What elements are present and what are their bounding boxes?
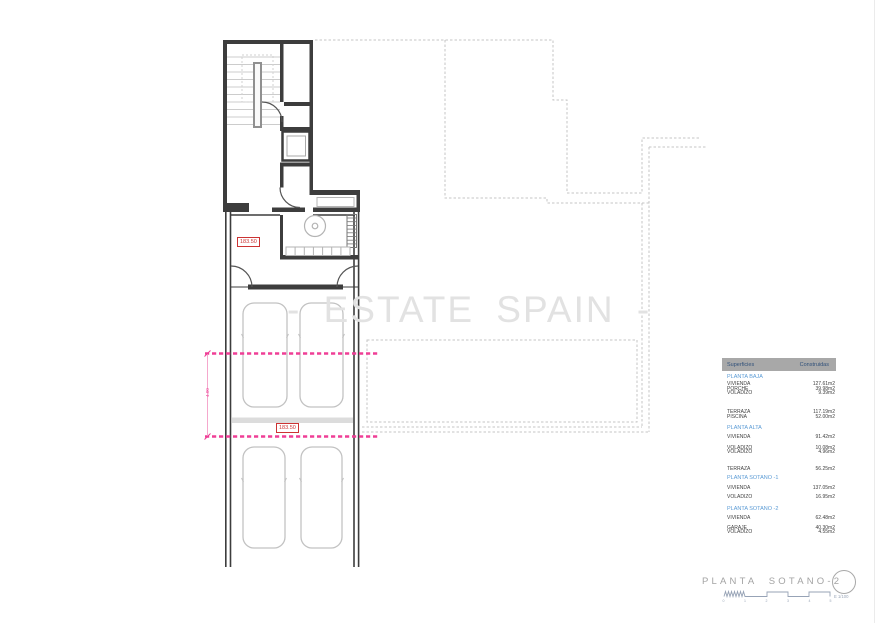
- surface-value: 9.39m2: [818, 391, 835, 396]
- elevator-shaft: [283, 132, 310, 161]
- surface-label: VIVIENDA: [727, 435, 750, 440]
- surface-value: 52.00m2: [816, 415, 835, 420]
- car-outline: [301, 447, 342, 548]
- surfaces-header-right: Construidas: [800, 362, 829, 368]
- table-section-row: PLANTA SOTANO -1: [727, 476, 835, 481]
- level-elevation-label: 183.50: [276, 423, 299, 433]
- table-row: VOLADIZO4.55m2: [727, 530, 835, 535]
- table-row: VOLADIZO9.39m2: [727, 391, 835, 396]
- scale-tick: 4: [809, 599, 811, 603]
- surface-label: VOLADIZO: [727, 495, 752, 500]
- watermark-text: - ESTATE SPAIN -: [287, 289, 651, 331]
- car-outline: [243, 303, 287, 407]
- surface-label: VOLADIZO: [727, 530, 752, 535]
- table-row: VIVIENDA137.05m2: [727, 486, 835, 491]
- table-section-row: PLANTA ALTA: [727, 426, 835, 431]
- scale-tick: 2: [766, 599, 768, 603]
- dimension-value-label: 4.00: [205, 388, 210, 397]
- surface-value: 91.42m2: [816, 435, 835, 440]
- car-outline: [243, 447, 285, 548]
- scale-bar: 0 1 2 3 4 5 E 1/100: [723, 592, 850, 604]
- scale-tick: 3: [787, 599, 789, 603]
- car-mirrors: [242, 334, 345, 482]
- table-section-row: PLANTA SOTANO -2: [727, 507, 835, 512]
- surfaces-table: PLANTA BAJA VIVIENDA127.61m2 PORCHE39.98…: [722, 375, 836, 535]
- door-arc-room: [280, 188, 300, 208]
- surface-label: TERRAZA: [727, 467, 750, 472]
- surfaces-header-left: Superficies: [727, 362, 754, 368]
- door-arc-terrace-left: [231, 266, 252, 287]
- surface-label: PISCINA: [727, 415, 747, 420]
- table-row: PISCINA52.00m2: [727, 415, 835, 420]
- drawing-title: PLANTA SOTANO-2: [702, 576, 842, 587]
- table-row: VOLADIZO4.96m2: [727, 450, 835, 455]
- round-table-fixture: [305, 216, 326, 237]
- section-label: PLANTA SOTANO -2: [727, 507, 778, 512]
- shelf-hatch-strip: [347, 215, 357, 248]
- section-label: PLANTA BAJA: [727, 375, 763, 380]
- counter-units: [286, 247, 350, 256]
- scale-tick: 1: [744, 599, 746, 603]
- surface-label: VOLADIZO: [727, 391, 752, 396]
- surface-value: 56.25m2: [816, 467, 835, 472]
- wall-thin-lines: [226, 212, 359, 567]
- wall-niche: [317, 198, 354, 207]
- surface-value: 62.48m2: [816, 516, 835, 521]
- upper-floor-ghost-outline: [315, 40, 706, 432]
- section-label: PLANTA ALTA: [727, 426, 762, 431]
- table-row: VIVIENDA62.48m2: [727, 516, 835, 521]
- surface-label: VIVIENDA: [727, 486, 750, 491]
- surface-value: 4.55m2: [818, 530, 835, 535]
- surfaces-table-header: Superficies Construidas: [722, 358, 836, 371]
- table-row: VOLADIZO16.95m2: [727, 495, 835, 500]
- section-label: PLANTA SOTANO -1: [727, 476, 778, 481]
- surface-value: 4.96m2: [818, 450, 835, 455]
- stair-handrail: [254, 63, 261, 127]
- surface-value: 137.05m2: [813, 486, 835, 491]
- scale-tick: 5: [830, 599, 832, 603]
- door-arc-terrace-right: [337, 266, 358, 287]
- surface-label: VIVIENDA: [727, 516, 750, 521]
- scale-tick: 0: [723, 599, 725, 603]
- pool-ghost-outline: [362, 340, 649, 432]
- table-row: TERRAZA56.25m2: [727, 467, 835, 472]
- level-elevation-label: 183.50: [237, 237, 260, 247]
- floorplan-sheet: 0 1 2 3 4 5 E 1/100 - ESTATE SPAIN - 183…: [0, 0, 881, 623]
- title-circle-mark: [832, 570, 856, 594]
- staircase: [227, 55, 280, 127]
- table-section-row: PLANTA BAJA: [727, 375, 835, 380]
- door-arc-hall: [262, 102, 282, 122]
- table-row: VIVIENDA91.42m2: [727, 435, 835, 440]
- scale-ratio-label: E 1/100: [834, 594, 849, 599]
- surface-value: 16.95m2: [816, 495, 835, 500]
- surface-label: VOLADIZO: [727, 450, 752, 455]
